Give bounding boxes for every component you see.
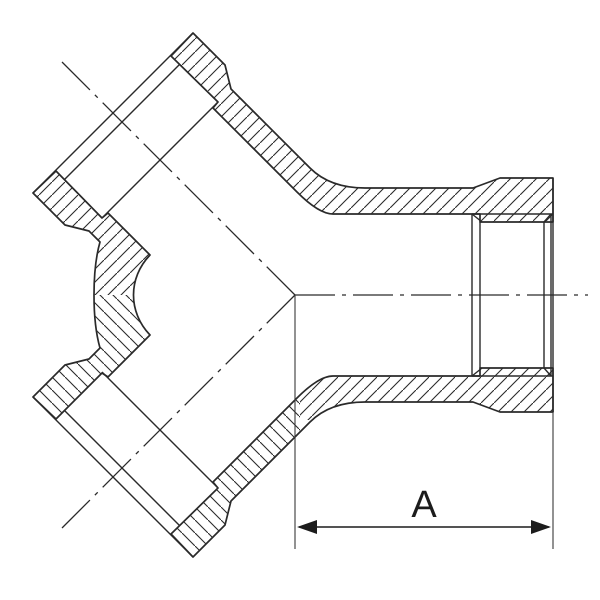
dimension-label: A	[411, 484, 437, 526]
section-hatching	[20, 33, 560, 570]
arrowhead-left-icon	[297, 520, 317, 534]
centerlines	[62, 62, 588, 528]
pipe-fitting-section-drawing: A	[0, 0, 600, 600]
dimension-a: A	[295, 295, 553, 549]
drawing-canvas: A	[0, 0, 600, 600]
arrowhead-right-icon	[531, 520, 551, 534]
hatch-upper-branch-wall	[171, 33, 553, 222]
hatch-left-elbow-wall	[20, 160, 170, 430]
